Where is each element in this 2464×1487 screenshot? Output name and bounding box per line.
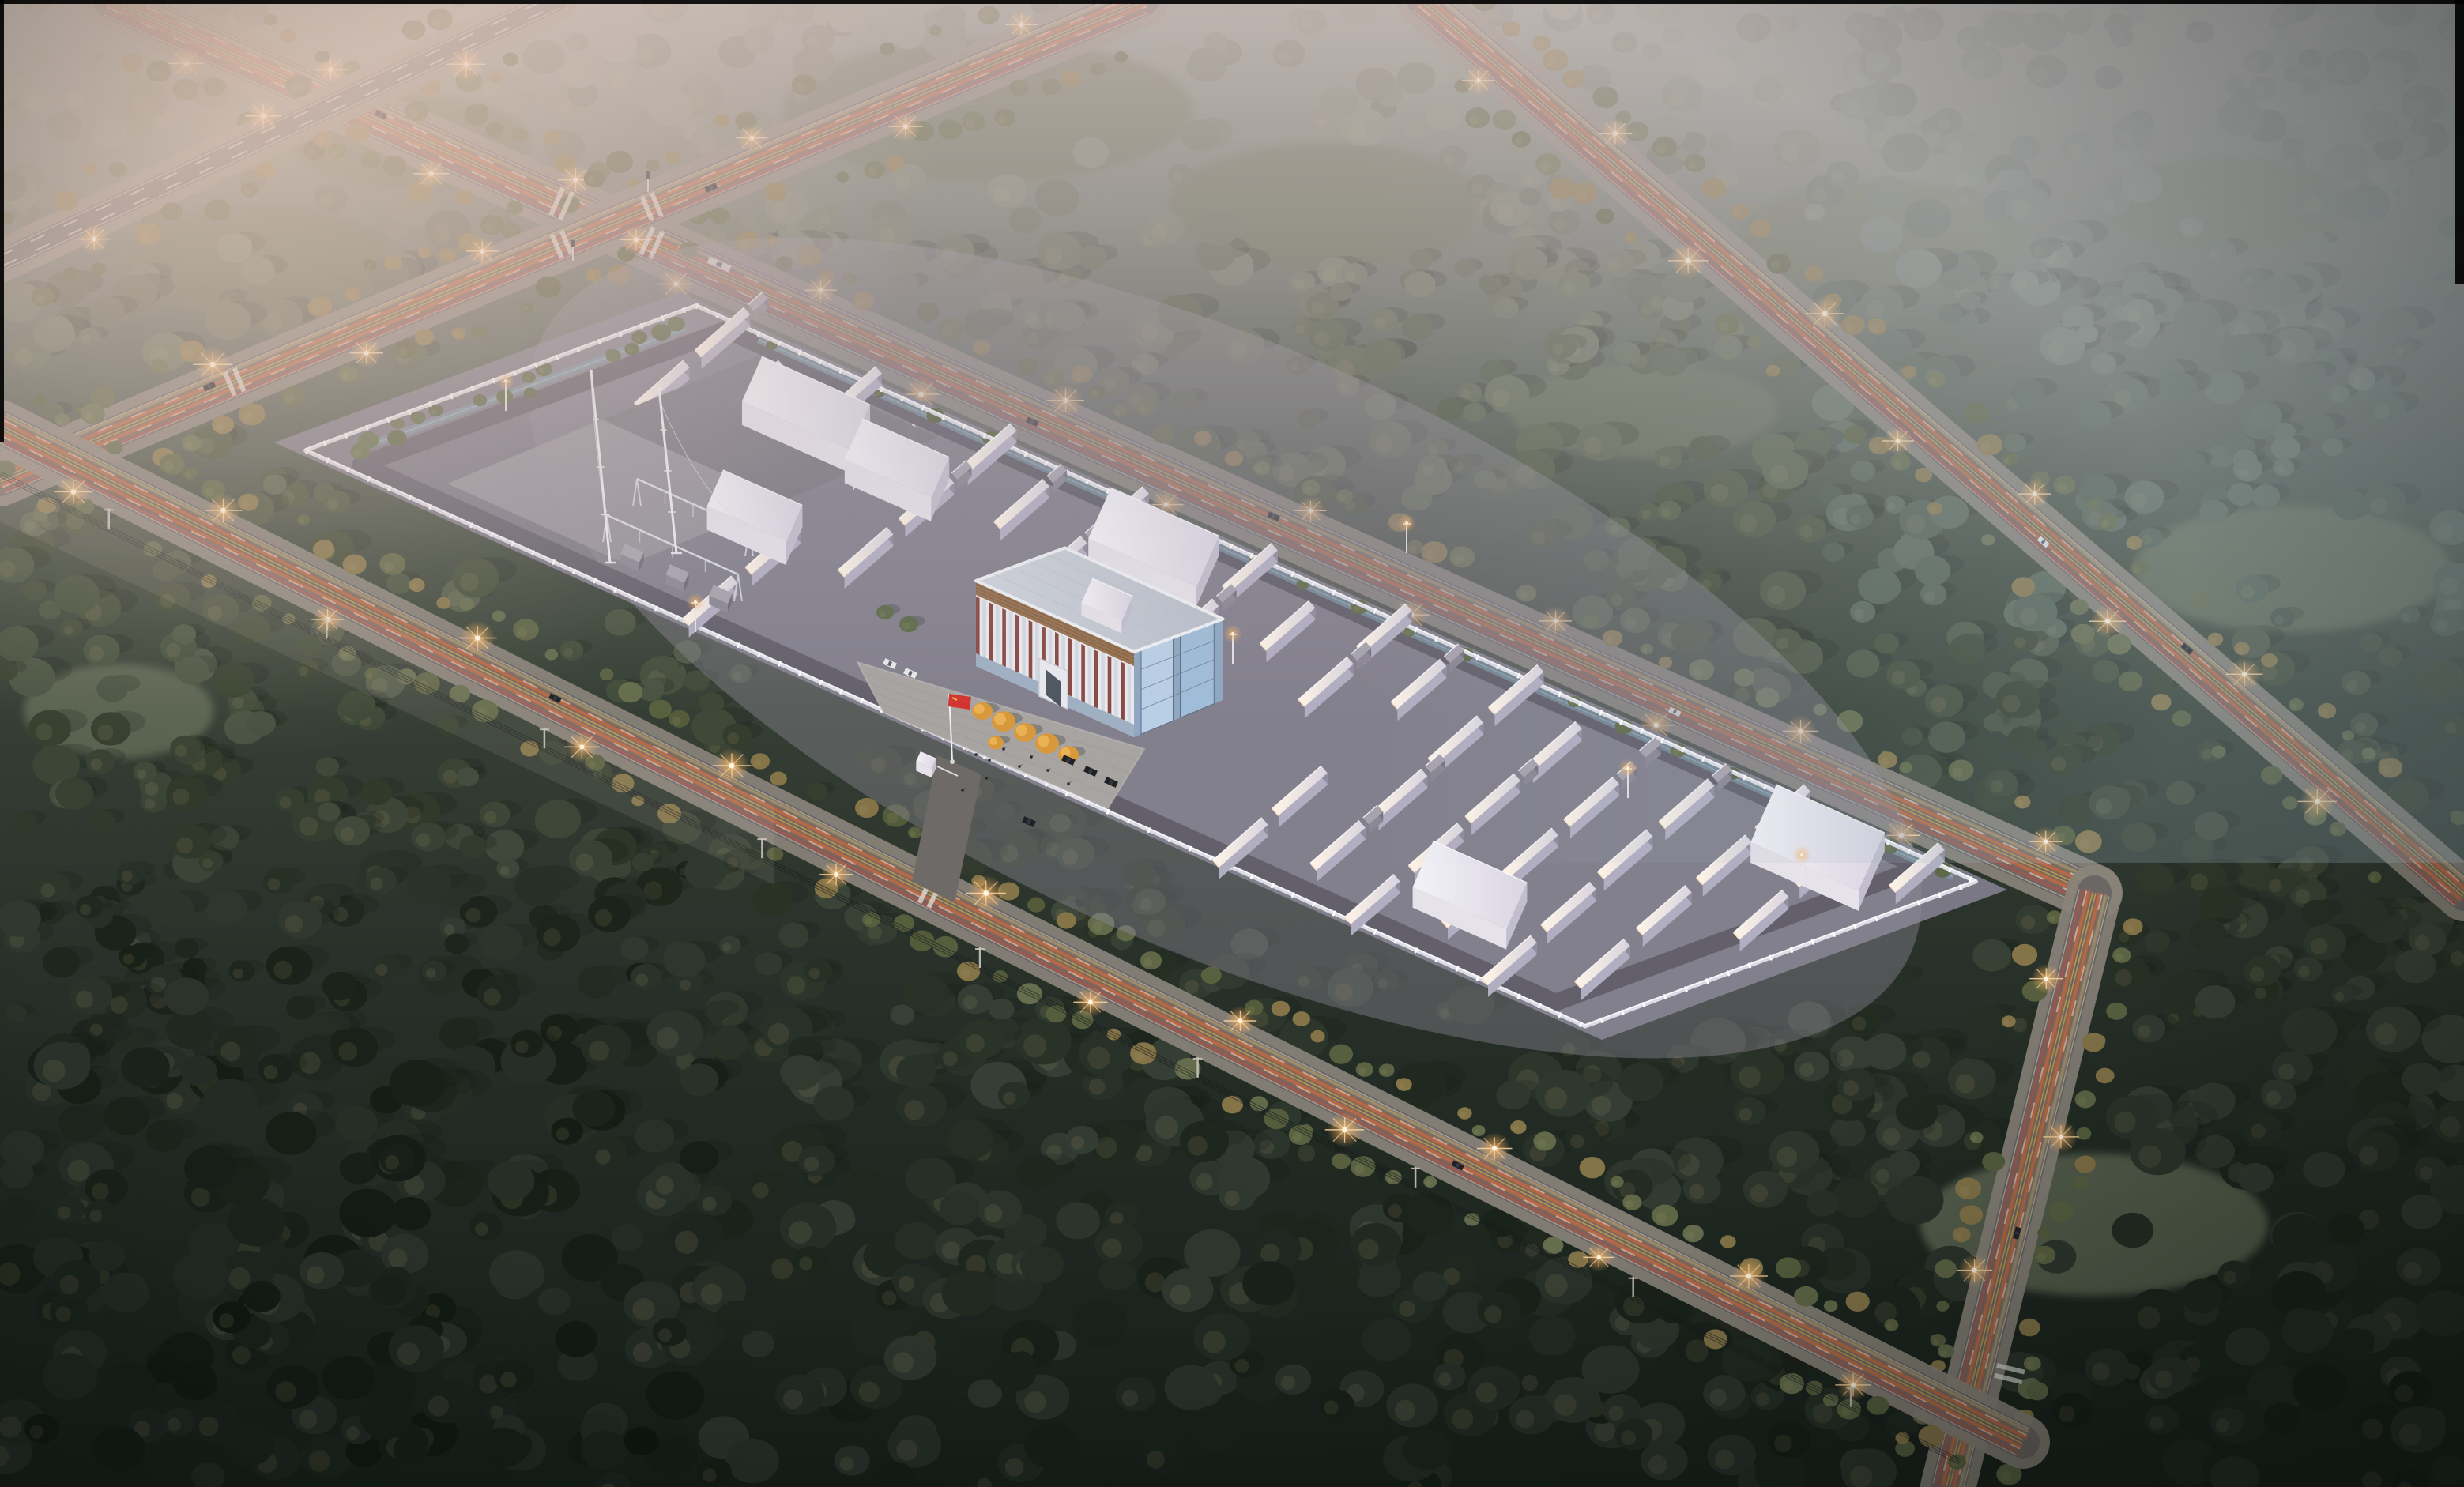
mist-overlay	[0, 0, 2464, 1487]
scene-svg	[0, 0, 2464, 1487]
aerial-rendering-canvas	[0, 0, 2464, 1487]
